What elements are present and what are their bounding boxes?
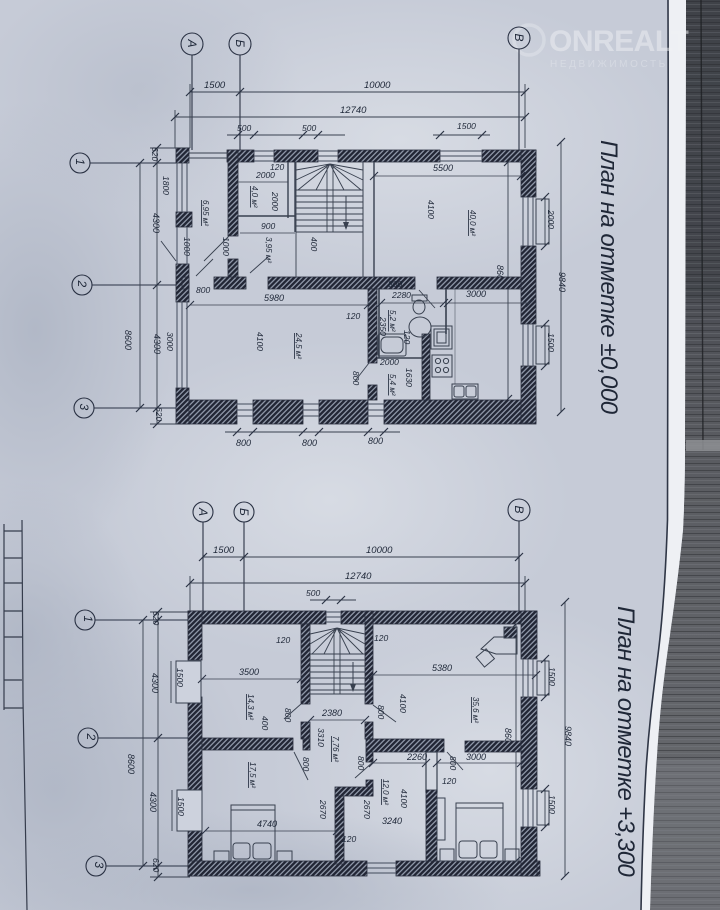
svg-text:3000: 3000 [466, 752, 486, 762]
svg-text:ONREALT: ONREALT [549, 25, 688, 58]
svg-text:6,95 м²: 6,95 м² [201, 200, 210, 226]
svg-text:800: 800 [236, 438, 251, 448]
svg-text:800: 800 [376, 705, 386, 719]
svg-text:500: 500 [302, 123, 316, 133]
svg-text:9840: 9840 [563, 726, 573, 746]
svg-text:800: 800 [196, 285, 210, 295]
svg-text:5380: 5380 [432, 663, 452, 673]
svg-text:7,76 м²: 7,76 м² [331, 736, 340, 762]
svg-text:800: 800 [302, 438, 317, 448]
svg-text:620: 620 [150, 147, 160, 161]
svg-text:120: 120 [374, 633, 388, 643]
svg-text:2: 2 [75, 280, 89, 288]
svg-text:1: 1 [73, 159, 87, 166]
svg-text:620: 620 [151, 611, 161, 625]
svg-text:1800: 1800 [161, 176, 171, 195]
svg-text:120: 120 [346, 311, 360, 321]
svg-text:800: 800 [356, 756, 366, 770]
svg-text:4740: 4740 [257, 819, 277, 829]
svg-text:900: 900 [261, 221, 275, 231]
svg-text:3: 3 [92, 862, 106, 869]
svg-text:2000: 2000 [379, 357, 399, 367]
svg-text:800: 800 [283, 708, 293, 722]
svg-text:400: 400 [260, 716, 270, 730]
svg-text:2000: 2000 [255, 170, 275, 180]
svg-text:120: 120 [402, 330, 412, 344]
svg-text:В: В [512, 34, 526, 42]
svg-text:4300: 4300 [148, 792, 158, 812]
svg-text:620: 620 [151, 858, 161, 872]
svg-text:3,95 м²: 3,95 м² [264, 237, 273, 263]
svg-text:1500: 1500 [457, 121, 476, 131]
svg-text:800: 800 [301, 757, 311, 771]
svg-text:2350: 2350 [378, 316, 388, 336]
svg-text:10000: 10000 [366, 545, 393, 556]
svg-text:800: 800 [368, 436, 383, 446]
svg-text:4300: 4300 [151, 213, 161, 233]
svg-text:620: 620 [154, 407, 164, 421]
svg-text:12,0 м²: 12,0 м² [381, 779, 390, 805]
svg-text:4300: 4300 [152, 334, 162, 354]
svg-text:40,0 м²: 40,0 м² [468, 210, 477, 236]
svg-text:5,2 м²: 5,2 м² [388, 310, 397, 332]
svg-text:План на отметке +3,300: План на отметке +3,300 [612, 606, 639, 877]
svg-text:24,5 м²: 24,5 м² [294, 332, 303, 359]
svg-text:4300: 4300 [150, 673, 160, 693]
svg-text:500: 500 [237, 123, 251, 133]
svg-text:4100: 4100 [426, 200, 436, 219]
svg-text:Б: Б [233, 40, 247, 48]
svg-text:3240: 3240 [382, 816, 402, 826]
svg-text:120: 120 [442, 776, 456, 786]
svg-text:12740: 12740 [340, 105, 367, 116]
svg-text:2280: 2280 [391, 290, 411, 300]
svg-text:3310: 3310 [316, 728, 326, 747]
svg-text:9840: 9840 [557, 272, 567, 292]
svg-text:2670: 2670 [362, 799, 372, 819]
svg-text:8600: 8600 [126, 754, 136, 774]
svg-text:800: 800 [448, 756, 458, 770]
svg-text:800: 800 [388, 279, 402, 289]
svg-text:8600: 8600 [123, 330, 133, 350]
svg-text:120: 120 [342, 834, 356, 844]
svg-text:120: 120 [276, 635, 290, 645]
svg-text:400: 400 [309, 237, 319, 251]
svg-text:1500: 1500 [176, 797, 186, 816]
svg-text:НЕДВИЖИМОСТЬ: НЕДВИЖИМОСТЬ [550, 59, 668, 70]
svg-text:3: 3 [77, 404, 91, 411]
svg-text:5500: 5500 [433, 163, 453, 173]
svg-text:Б: Б [237, 508, 251, 516]
svg-text:800: 800 [351, 371, 361, 385]
svg-text:500: 500 [306, 588, 320, 598]
svg-text:12740: 12740 [345, 571, 372, 582]
svg-text:10000: 10000 [364, 80, 391, 91]
svg-text:5980: 5980 [264, 293, 284, 303]
svg-text:А: А [185, 39, 199, 48]
svg-text:3500: 3500 [239, 667, 259, 677]
svg-text:5,4 м²: 5,4 м² [388, 374, 397, 396]
svg-text:3000: 3000 [466, 289, 486, 299]
svg-text:А: А [196, 507, 210, 516]
svg-text:1630: 1630 [404, 368, 414, 387]
svg-text:1500: 1500 [546, 333, 556, 352]
svg-text:14,3 м²: 14,3 м² [246, 694, 255, 720]
svg-text:2: 2 [84, 733, 98, 741]
svg-text:3000: 3000 [165, 332, 175, 351]
svg-text:4100: 4100 [399, 789, 409, 808]
svg-text:4100: 4100 [255, 332, 265, 351]
svg-text:2670: 2670 [318, 799, 328, 819]
svg-text:В: В [512, 506, 526, 514]
svg-text:35,6 м²: 35,6 м² [471, 697, 480, 723]
svg-text:План на отметке ±0,000: План на отметке ±0,000 [595, 140, 622, 415]
svg-text:2000: 2000 [270, 191, 280, 211]
svg-text:4100: 4100 [398, 694, 408, 713]
svg-text:1500: 1500 [204, 80, 226, 91]
svg-text:2000: 2000 [546, 209, 556, 229]
svg-text:1500: 1500 [213, 545, 235, 556]
svg-text:17,5 м²: 17,5 м² [248, 762, 257, 788]
svg-text:1000: 1000 [221, 237, 231, 256]
svg-text:1: 1 [81, 616, 95, 623]
svg-text:2260: 2260 [406, 752, 427, 762]
svg-text:2380: 2380 [321, 708, 342, 718]
svg-text:4,0 м²: 4,0 м² [250, 186, 259, 208]
svg-text:1500: 1500 [175, 668, 185, 687]
